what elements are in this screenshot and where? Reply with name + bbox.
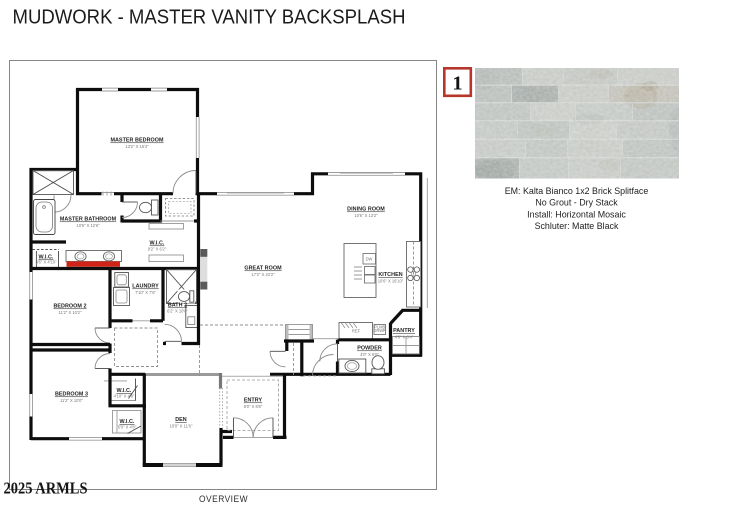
svg-text:DINING ROOM: DINING ROOM — [347, 207, 385, 213]
svg-text:Schluter: Matte Black: Schluter: Matte Black — [535, 221, 619, 231]
svg-text:11'2" X 10'0": 11'2" X 10'0" — [60, 398, 83, 403]
svg-text:DW: DW — [366, 257, 373, 262]
svg-text:11'2" X 10'2": 11'2" X 10'2" — [59, 310, 82, 315]
svg-text:BEDROOM 2: BEDROOM 2 — [53, 304, 86, 310]
svg-text:17'2" X 22'2": 17'2" X 22'2" — [251, 272, 275, 277]
svg-text:1: 1 — [452, 73, 462, 95]
svg-text:5'0" X 4'8": 5'0" X 4'8" — [118, 425, 137, 430]
svg-text:ENTRY: ENTRY — [244, 398, 263, 404]
svg-text:9'2" X 6'2": 9'2" X 6'2" — [148, 247, 167, 252]
svg-text:10'6" X 12'6": 10'6" X 12'6" — [76, 223, 100, 228]
svg-text:10'6" X 13'2": 10'6" X 13'2" — [354, 213, 378, 218]
svg-text:10'0" X 11'6": 10'0" X 11'6" — [170, 424, 193, 429]
svg-text:2025 ARMLS: 2025 ARMLS — [4, 479, 88, 498]
svg-text:3'6" X 4'10": 3'6" X 4'10" — [36, 260, 57, 265]
svg-text:KITCHEN: KITCHEN — [378, 272, 402, 278]
svg-text:13'2" X 15'4": 13'2" X 15'4" — [125, 144, 149, 149]
svg-text:EM: Kalta Bianco 1x2 Brick Spl: EM: Kalta Bianco 1x2 Brick Splitface — [505, 186, 649, 196]
svg-text:REF: REF — [352, 329, 361, 334]
svg-text:DEN: DEN — [175, 417, 187, 423]
svg-text:No Grout - Dry Stack: No Grout - Dry Stack — [535, 198, 618, 208]
svg-text:6'2" X 10'8": 6'2" X 10'8" — [167, 309, 188, 314]
svg-text:Install: Horizontal Mosaic: Install: Horizontal Mosaic — [527, 209, 626, 219]
svg-text:OVERVIEW: OVERVIEW — [199, 494, 248, 504]
svg-text:8'0" X 8'8": 8'0" X 8'8" — [244, 404, 263, 409]
svg-text:LAUNDRY: LAUNDRY — [132, 284, 159, 290]
svg-text:7'10" X 7'6": 7'10" X 7'6" — [135, 290, 156, 295]
svg-text:4'8" X 6'4": 4'8" X 6'4" — [395, 335, 414, 340]
svg-text:POWDER: POWDER — [357, 346, 382, 352]
svg-text:MASTER BEDROOM: MASTER BEDROOM — [110, 138, 164, 144]
svg-text:4'10" X 4'8": 4'10" X 4'8" — [114, 394, 135, 399]
svg-text:4'0" X 6'0": 4'0" X 6'0" — [360, 352, 379, 357]
svg-text:GREAT ROOM: GREAT ROOM — [244, 266, 282, 272]
svg-text:PANTRY: PANTRY — [393, 328, 415, 334]
svg-text:DRWR: DRWR — [373, 328, 386, 333]
svg-text:BEDROOM 3: BEDROOM 3 — [55, 392, 88, 398]
svg-text:MASTER BATHROOM: MASTER BATHROOM — [60, 217, 117, 223]
svg-text:MUDWORK - MASTER VANITY BACKSP: MUDWORK - MASTER VANITY BACKSPLASH — [13, 7, 406, 29]
svg-text:10'6" X 16'10": 10'6" X 16'10" — [378, 279, 404, 284]
